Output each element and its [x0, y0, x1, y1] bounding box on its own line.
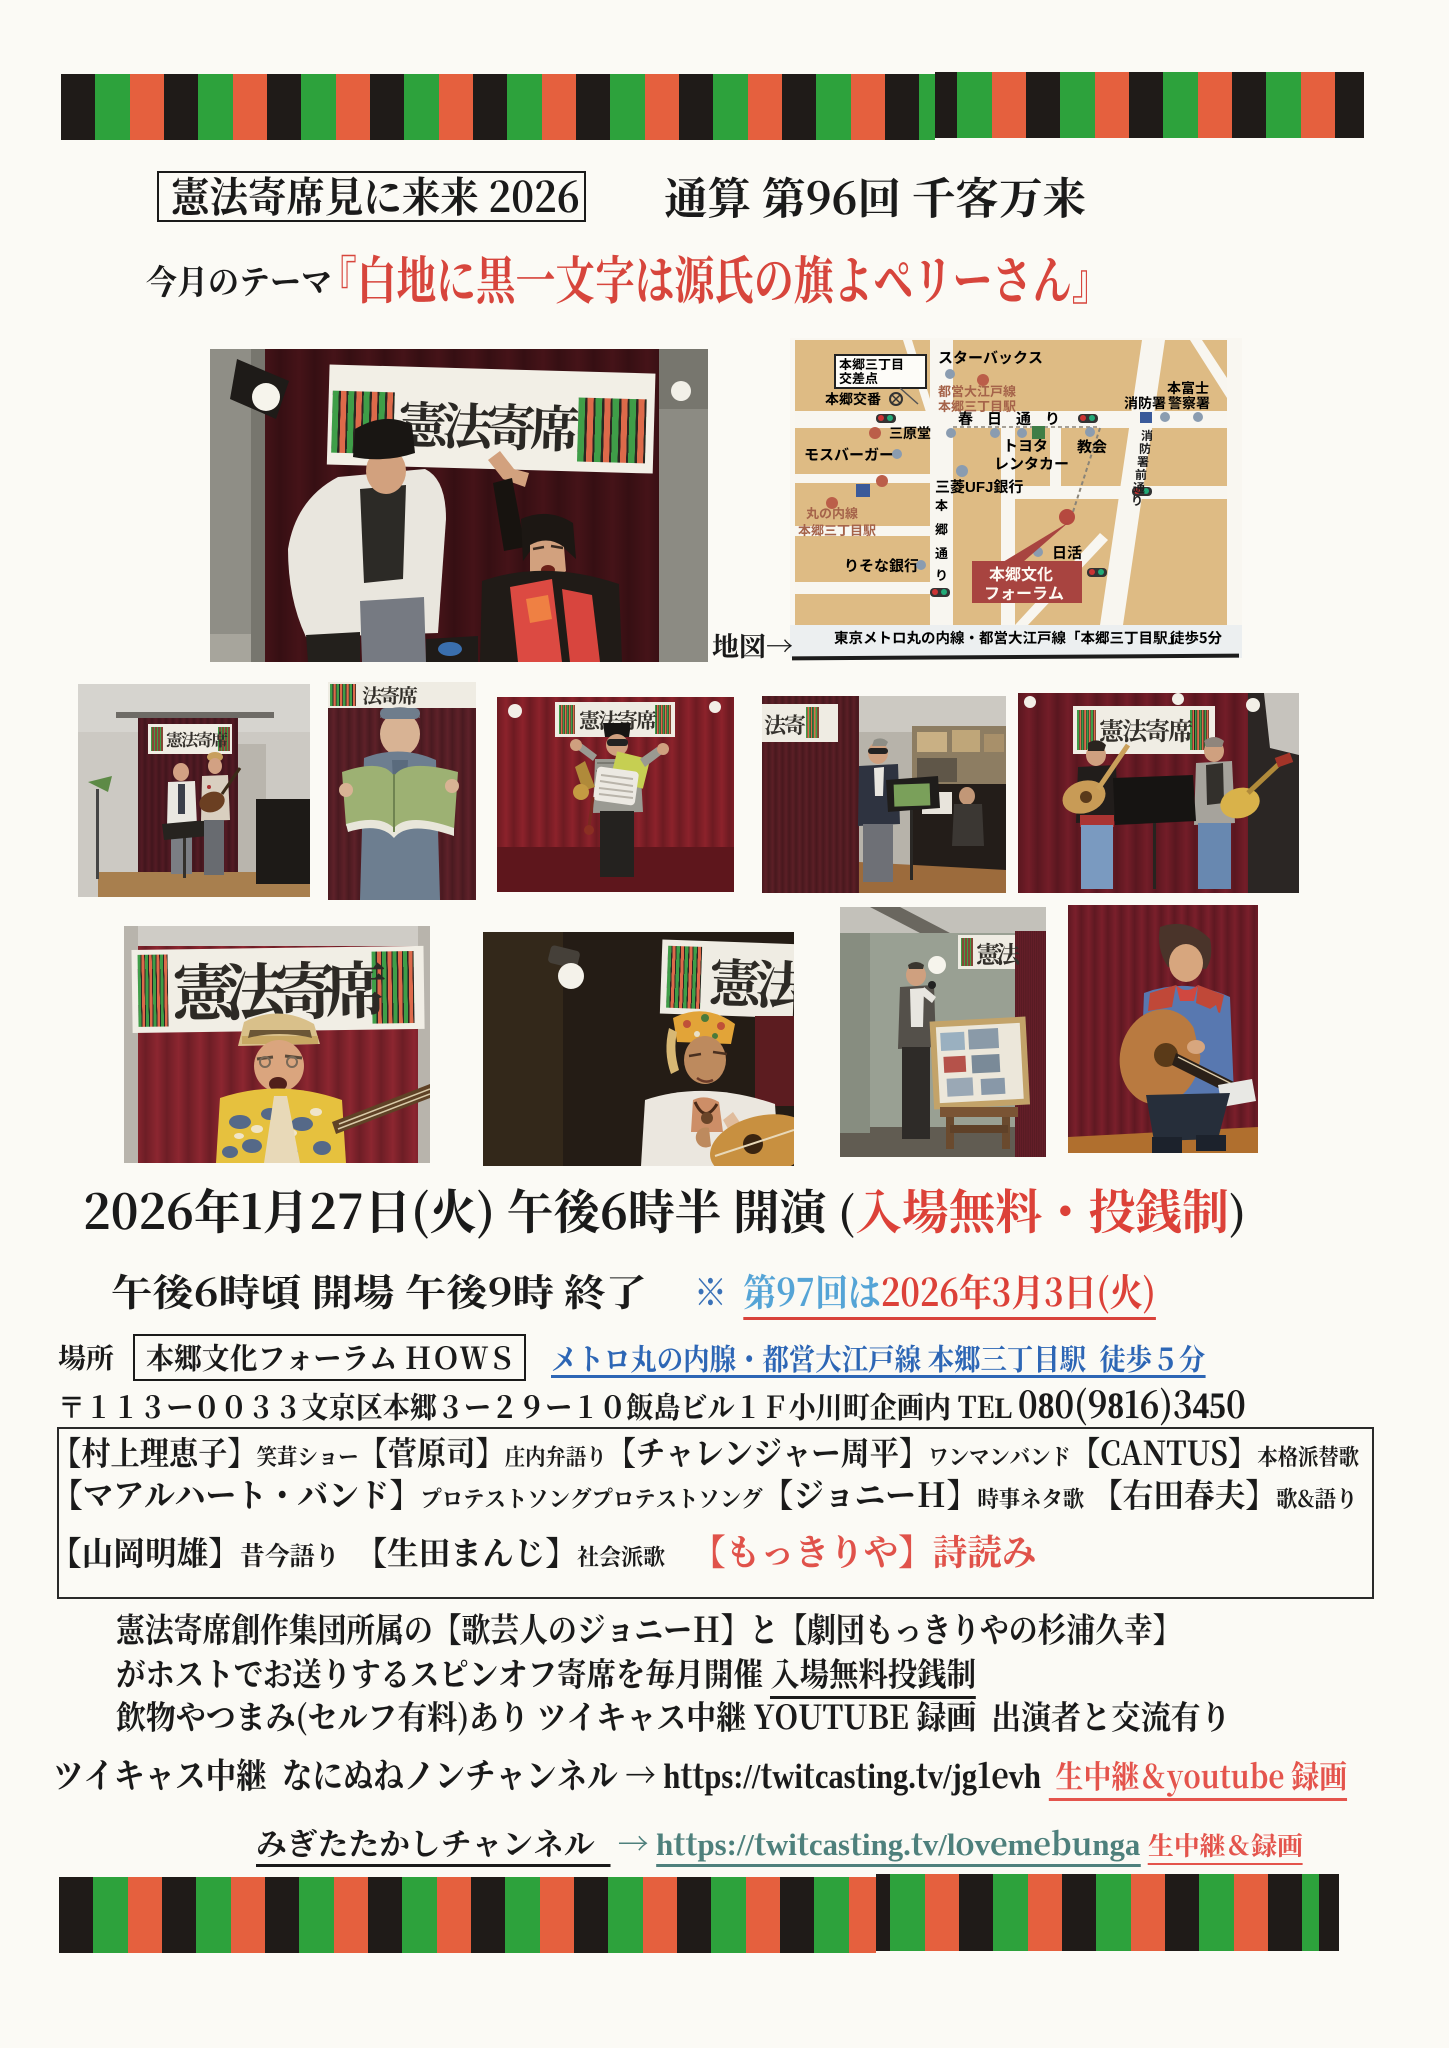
svg-text:日活: 日活 — [1052, 542, 1082, 563]
svg-text:法寄: 法寄 — [764, 709, 806, 740]
svg-text:モスバーガー: モスバーガー — [804, 444, 894, 465]
svg-text:フォーラム: フォーラム — [984, 580, 1064, 604]
svg-text:憲法寄席: 憲法寄席 — [397, 385, 580, 462]
svg-text:レンタカー: レンタカー — [994, 453, 1069, 474]
svg-text:りそな銀行: りそな銀行 — [844, 555, 919, 576]
svg-text:り: り — [935, 565, 948, 584]
svg-text:警察署: 警察署 — [1168, 393, 1210, 413]
svg-text:教会: 教会 — [1077, 436, 1107, 457]
svg-text:交差点: 交差点 — [839, 368, 878, 387]
svg-text:通: 通 — [935, 543, 948, 562]
svg-text:本郷三丁目駅: 本郷三丁目駅 — [798, 520, 876, 539]
svg-text:スターバックス: スターバックス — [938, 347, 1043, 368]
svg-text:三菱UFJ銀行: 三菱UFJ銀行 — [935, 476, 1023, 497]
svg-text:憲法: 憲法 — [708, 941, 794, 1020]
svg-text:三原堂: 三原堂 — [889, 423, 931, 443]
svg-text:法寄席: 法寄席 — [362, 682, 418, 709]
svg-text:郷: 郷 — [935, 519, 948, 538]
svg-text:春日通り: 春日通り — [958, 408, 1074, 429]
svg-text:憲法寄席: 憲法寄席 — [166, 726, 228, 751]
svg-text:徒歩5分: 徒歩5分 — [1170, 627, 1223, 648]
svg-text:り: り — [1131, 492, 1143, 509]
svg-text:憲法寄席: 憲法寄席 — [1099, 712, 1193, 748]
svg-text:憲法: 憲法 — [976, 935, 1022, 970]
svg-text:本: 本 — [935, 495, 948, 514]
svg-text:本郷交番: 本郷交番 — [825, 389, 881, 409]
svg-text:消防署: 消防署 — [1124, 393, 1166, 413]
svg-text:東京メトロ丸の内線・都営大江戸線「本郷三丁目駅」: 東京メトロ丸の内線・都営大江戸線「本郷三丁目駅」 — [834, 627, 1182, 648]
